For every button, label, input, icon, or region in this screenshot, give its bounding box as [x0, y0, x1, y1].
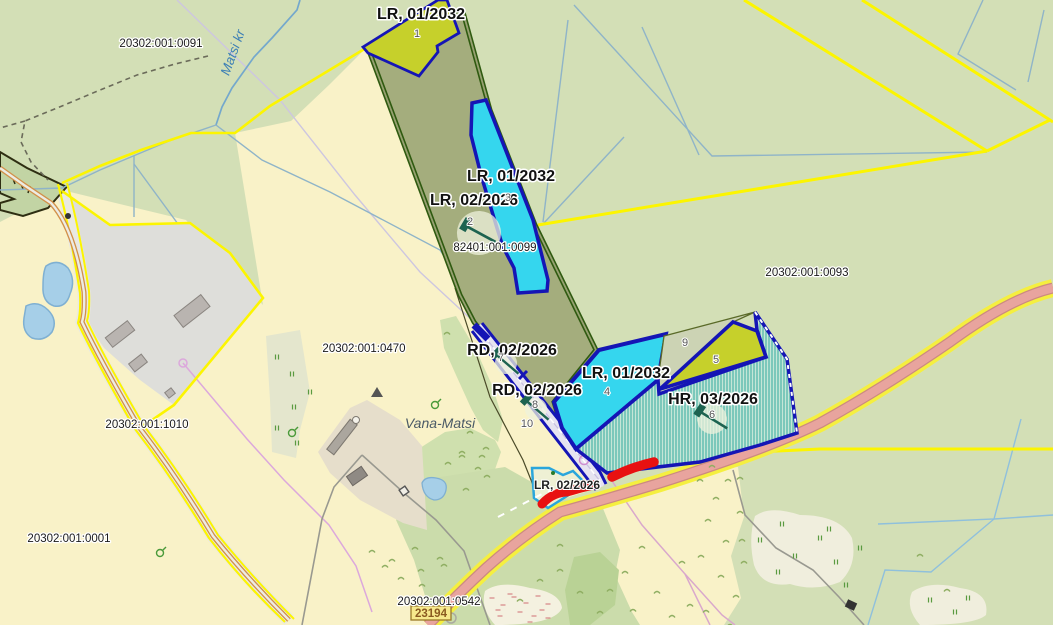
svg-text:1: 1	[414, 28, 420, 40]
svg-text:20302:001:0542: 20302:001:0542	[397, 596, 480, 608]
svg-text:HR, 03/2026: HR, 03/2026	[668, 391, 758, 408]
svg-text:5: 5	[713, 354, 719, 366]
svg-text:20302:001:0091: 20302:001:0091	[119, 38, 202, 50]
svg-text:23194: 23194	[415, 608, 448, 620]
svg-text:LR, 01/2032: LR, 01/2032	[377, 6, 465, 23]
svg-text:Vana-Matsi: Vana-Matsi	[405, 415, 476, 431]
svg-text:RD, 02/2026: RD, 02/2026	[467, 342, 557, 359]
svg-text:4: 4	[604, 386, 610, 398]
svg-text:20302:001:0470: 20302:001:0470	[322, 343, 405, 355]
svg-text:8: 8	[532, 399, 538, 411]
svg-text:20302:001:1010: 20302:001:1010	[105, 419, 188, 431]
svg-text:3: 3	[505, 192, 511, 204]
svg-text:6: 6	[709, 409, 715, 421]
svg-text:LR, 01/2032: LR, 01/2032	[467, 168, 555, 185]
svg-text:9: 9	[682, 337, 688, 349]
svg-text:10: 10	[521, 418, 533, 430]
svg-text:LR, 02/2026: LR, 02/2026	[534, 478, 600, 492]
svg-text:RD, 02/2026: RD, 02/2026	[492, 382, 582, 399]
svg-text:20302:001:0093: 20302:001:0093	[765, 267, 848, 279]
svg-text:82401:001:0099: 82401:001:0099	[453, 242, 536, 254]
svg-text:20302:001:0001: 20302:001:0001	[27, 533, 110, 545]
svg-text:7: 7	[498, 352, 504, 364]
svg-text:2: 2	[467, 216, 473, 228]
svg-text:LR, 01/2032: LR, 01/2032	[582, 365, 670, 382]
